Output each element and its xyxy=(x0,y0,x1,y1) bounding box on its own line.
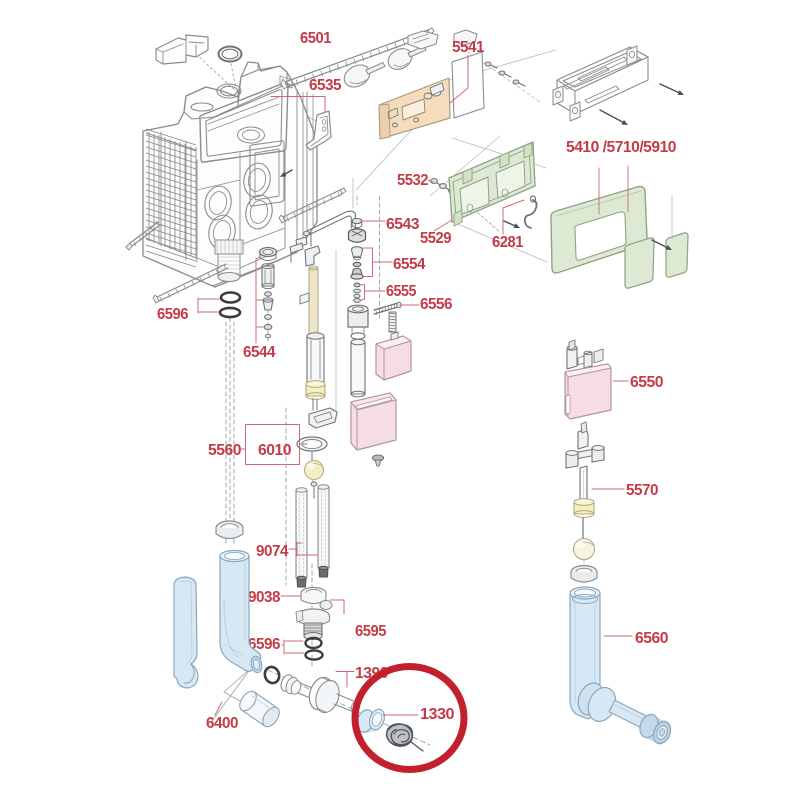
svg-text:6400: 6400 xyxy=(206,715,239,732)
svg-text:6555: 6555 xyxy=(386,283,417,300)
svg-text:5529: 5529 xyxy=(420,230,452,247)
svg-text:9038: 9038 xyxy=(248,589,281,606)
svg-text:1330: 1330 xyxy=(420,706,455,723)
svg-text:5560: 5560 xyxy=(208,442,242,459)
svg-text:6501: 6501 xyxy=(300,30,332,47)
svg-text:6595: 6595 xyxy=(355,623,387,640)
svg-text:6550: 6550 xyxy=(630,374,664,391)
svg-text:5532: 5532 xyxy=(397,172,429,189)
svg-text:6554: 6554 xyxy=(393,256,426,273)
svg-text:6596: 6596 xyxy=(157,306,189,323)
svg-text:5541: 5541 xyxy=(452,39,485,56)
svg-text:6010: 6010 xyxy=(258,442,292,459)
svg-text:6543: 6543 xyxy=(386,216,420,233)
svg-text:6556: 6556 xyxy=(420,296,453,313)
svg-text:6544: 6544 xyxy=(243,344,276,361)
svg-text:9074: 9074 xyxy=(256,543,289,560)
svg-text:6281: 6281 xyxy=(492,234,524,251)
svg-text:6535: 6535 xyxy=(309,77,342,94)
svg-text:6560: 6560 xyxy=(635,630,669,647)
svg-text:5410 /5710/5910: 5410 /5710/5910 xyxy=(566,139,677,156)
svg-text:5570: 5570 xyxy=(626,482,659,499)
